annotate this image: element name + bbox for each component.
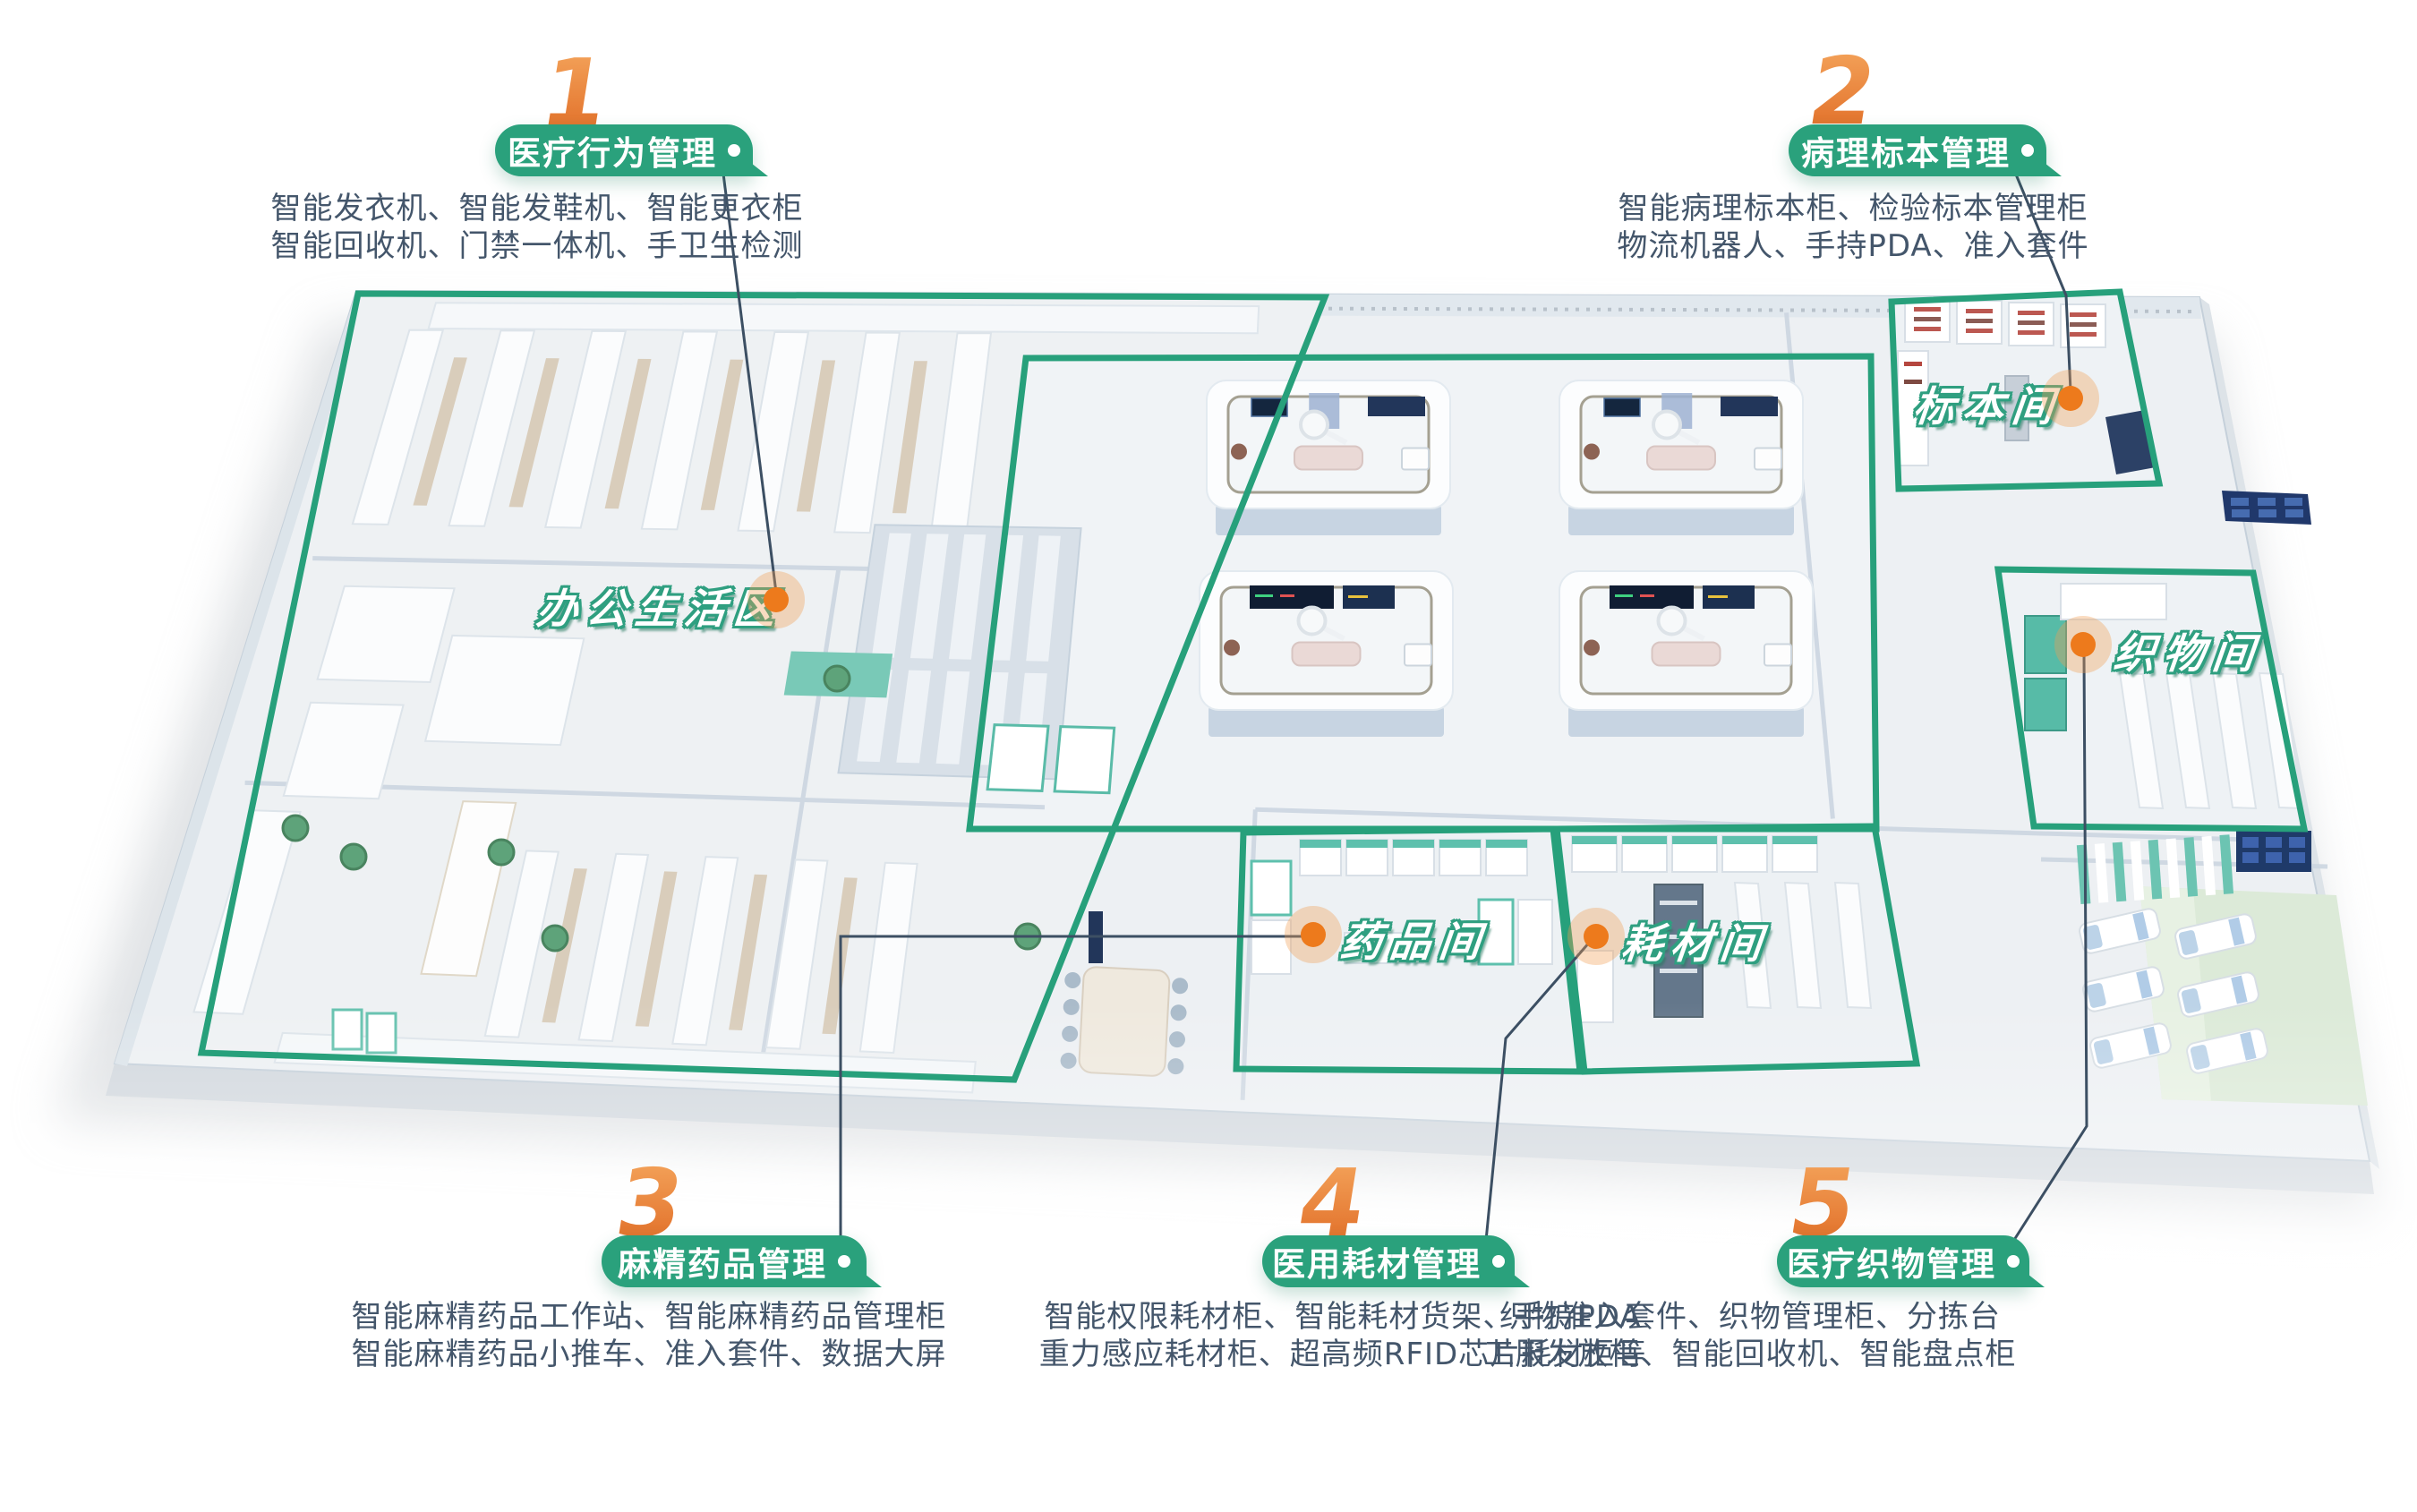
section-desc-1-line1: 智能发衣机、智能发鞋机、智能更衣柜: [224, 190, 850, 227]
section-title-3: 麻精药品管理: [618, 1237, 827, 1286]
section-title-4: 医用耗材管理: [1272, 1237, 1482, 1286]
section-badge-3: 麻精药品管理: [602, 1235, 867, 1287]
room-marker-dot-fabric: [2071, 632, 2096, 657]
section-desc-2-line2: 物流机器人、手持PDA、准入套件: [1540, 227, 2166, 265]
section-badge-2: 病理标本管理: [1789, 124, 2046, 176]
bottom-fade: [0, 985, 2417, 1343]
room-label-consumables-room: 耗材间: [1619, 911, 1773, 970]
section-title-2: 病理标本管理: [1801, 126, 2011, 175]
section-desc-3: 智能麻精药品工作站、智能麻精药品管理柜 智能麻精药品小推车、准入套件、数据大屏: [336, 1298, 962, 1373]
room-marker-dot-specimen: [2058, 386, 2083, 411]
badge-dot-icon-5: [2007, 1255, 2020, 1268]
section-desc-3-line2: 智能麻精药品小推车、准入套件、数据大屏: [336, 1336, 962, 1373]
section-desc-5-line1: 织物准入套件、织物管理柜、分拣台: [1437, 1298, 2063, 1336]
section-badge-5: 医疗织物管理: [1777, 1235, 2029, 1287]
badge-dot-icon-2: [2021, 144, 2034, 157]
room-marker-dot-office: [764, 587, 789, 612]
room-label-specimen-room: 标本间: [1911, 374, 2065, 433]
section-desc-5: 织物准入套件、织物管理柜、分拣台 工服发放柜、智能回收机、智能盘点柜: [1437, 1298, 2063, 1373]
corridor-panels: [2222, 491, 2311, 525]
room-marker-dot-drug: [1301, 922, 1326, 947]
badge-dot-icon-4: [1492, 1255, 1505, 1268]
section-title-5: 医疗织物管理: [1787, 1237, 1996, 1286]
room-label-fabric-room: 织物间: [2112, 621, 2266, 680]
section-desc-1-line2: 智能回收机、门禁一体机、手卫生检测: [224, 227, 850, 265]
room-label-drug-room: 药品间: [1338, 910, 1492, 969]
section-desc-5-line2: 工服发放柜、智能回收机、智能盘点柜: [1437, 1336, 2063, 1373]
badge-dot-icon-1: [728, 144, 740, 157]
room-label-office-living-area: 办公生活区: [534, 577, 787, 636]
section-badge-4: 医用耗材管理: [1262, 1235, 1515, 1287]
badge-dot-icon-3: [838, 1255, 850, 1268]
room-marker-dot-consumables: [1584, 924, 1609, 949]
section-desc-2-line1: 智能病理标本柜、检验标本管理柜: [1540, 190, 2166, 227]
section-desc-1: 智能发衣机、智能发鞋机、智能更衣柜 智能回收机、门禁一体机、手卫生检测: [224, 190, 850, 265]
section-title-1: 医疗行为管理: [508, 126, 717, 175]
section-badge-1: 医疗行为管理: [495, 124, 753, 176]
section-desc-3-line1: 智能麻精药品工作站、智能麻精药品管理柜: [336, 1298, 962, 1336]
section-desc-2: 智能病理标本柜、检验标本管理柜 物流机器人、手持PDA、准入套件: [1540, 190, 2166, 265]
